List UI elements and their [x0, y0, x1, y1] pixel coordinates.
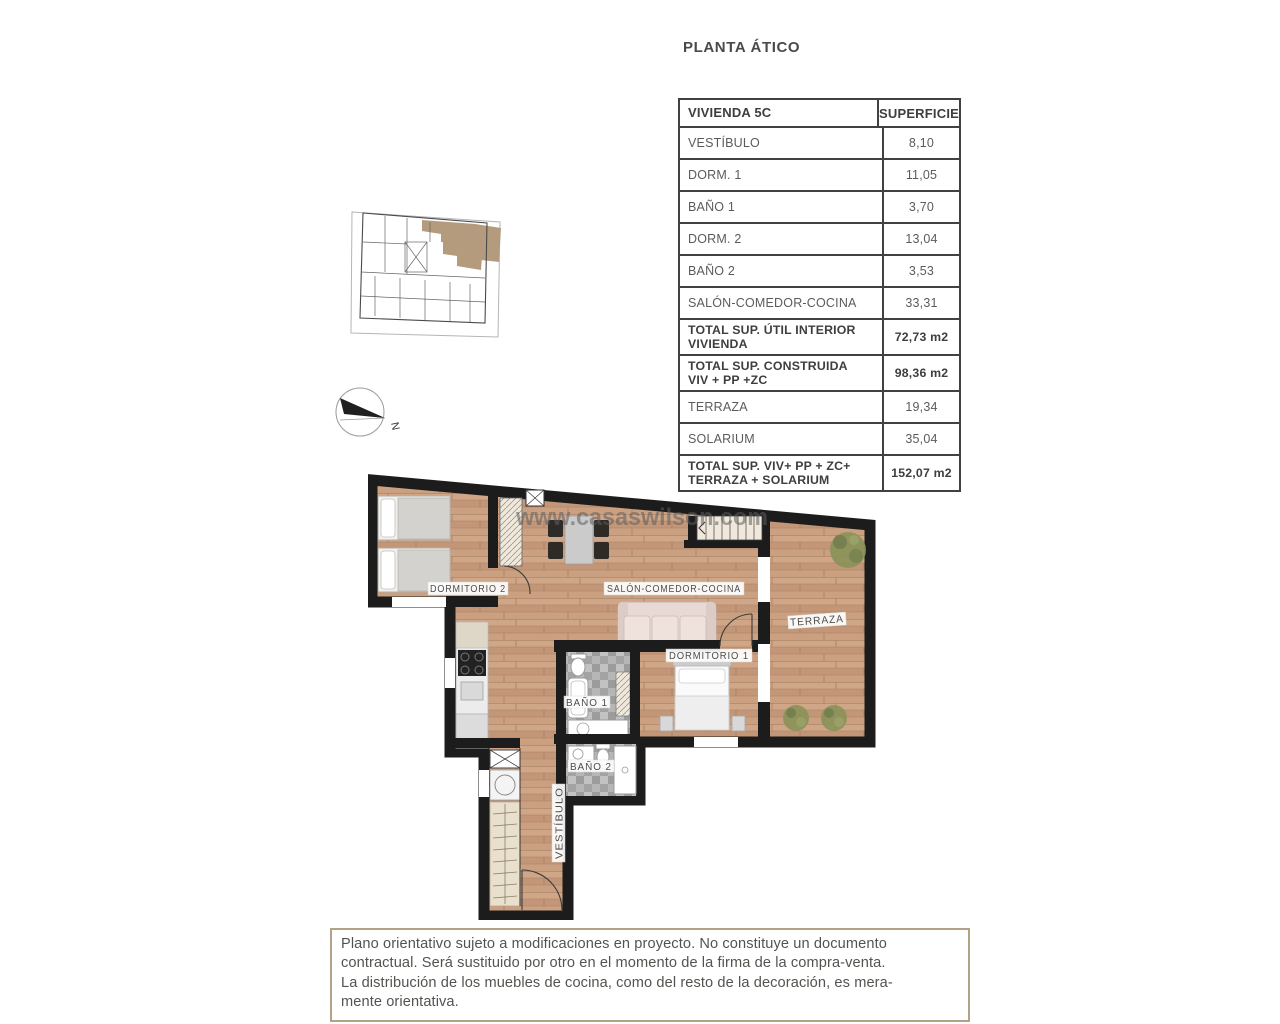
keyplan-thumbnail	[345, 200, 510, 350]
row-label: SOLARIUM	[680, 424, 884, 454]
label-bano1: BAÑO 1	[566, 696, 608, 709]
row-value: 11,05	[884, 160, 959, 190]
row-value: 72,73 m2	[884, 320, 959, 354]
toilet	[571, 658, 585, 676]
table-header-row: VIVIENDA 5C SUPERFICIE	[680, 100, 959, 126]
row-value: 98,36 m2	[884, 356, 959, 390]
row-label: BAÑO 2	[680, 256, 884, 286]
nightstand	[732, 716, 745, 731]
toilet-tank	[596, 744, 610, 749]
disclaimer-line: La distribución de los muebles de cocina…	[341, 974, 959, 993]
row-label: DORM. 2	[680, 224, 884, 254]
row-label: TOTAL SUP. CONSTRUIDA VIV + PP +ZC	[680, 356, 884, 390]
bano1-column	[616, 672, 630, 716]
disclaimer-box: Plano orientativo sujeto a modificacione…	[330, 928, 970, 1022]
disclaimer-line: Plano orientativo sujeto a modificacione…	[341, 935, 959, 954]
label-dormitorio1: DORMITORIO 1	[669, 650, 749, 662]
row-label: DORM. 1	[680, 160, 884, 190]
shower	[614, 746, 636, 794]
table-row: DORM. 1 11,05	[680, 158, 959, 190]
row-value: 8,10	[884, 128, 959, 158]
table-row: TERRAZA 19,34	[680, 390, 959, 422]
label-salon: SALÓN-COMEDOR-COCINA	[607, 582, 741, 595]
row-value: 19,34	[884, 392, 959, 422]
compass-line	[340, 418, 385, 420]
row-label: VESTÍBULO	[680, 128, 884, 158]
row-value: 3,70	[884, 192, 959, 222]
row-label: TOTAL SUP. ÚTIL INTERIOR VIVIENDA	[680, 320, 884, 354]
table-row: SALÓN-COMEDOR-COCINA 33,31	[680, 286, 959, 318]
washbasin	[568, 746, 594, 762]
page: { "page": { "title": "PLANTA ÁTICO" }, "…	[0, 0, 1280, 1024]
compass-needle	[340, 398, 385, 418]
nightstand	[660, 716, 673, 731]
floorplan-svg: DORMITORIO 2 SALÓN-COMEDOR-COCINA DORMIT…	[368, 472, 878, 920]
kitchen-sink	[461, 682, 483, 700]
compass: N	[328, 378, 413, 453]
table-row: BAÑO 2 3,53	[680, 254, 959, 286]
table-row: SOLARIUM 35,04	[680, 422, 959, 454]
surface-table: VIVIENDA 5C SUPERFICIE VESTÍBULO 8,10 DO…	[678, 98, 961, 492]
row-value: 13,04	[884, 224, 959, 254]
table-header-name: VIVIENDA 5C	[680, 100, 879, 126]
table-row: DORM. 2 13,04	[680, 222, 959, 254]
compass-north-label: N	[388, 421, 401, 431]
disclaimer-line: contractual. Será sustituido por otro en…	[341, 954, 959, 973]
table-row: BAÑO 1 3,70	[680, 190, 959, 222]
row-label: BAÑO 1	[680, 192, 884, 222]
disclaimer-line: mente orientativa.	[341, 993, 959, 1012]
kitchen-counter	[456, 622, 488, 748]
page-title: PLANTA ÁTICO	[683, 39, 800, 56]
row-label: TERRAZA	[680, 392, 884, 422]
label-vestibulo: VESTÍBULO	[553, 787, 566, 859]
row-label: SALÓN-COMEDOR-COCINA	[680, 288, 884, 318]
label-bano2: BAÑO 2	[570, 760, 612, 773]
row-value: 35,04	[884, 424, 959, 454]
table-header-value: SUPERFICIE	[879, 100, 959, 126]
row-value: 33,31	[884, 288, 959, 318]
label-dormitorio2: DORMITORIO 2	[430, 583, 506, 595]
table-row: VESTÍBULO 8,10	[680, 126, 959, 158]
table-row-total: TOTAL SUP. ÚTIL INTERIOR VIVIENDA 72,73 …	[680, 318, 959, 354]
row-value: 152,07 m2	[884, 456, 959, 490]
row-value: 3,53	[884, 256, 959, 286]
table-row-total: TOTAL SUP. CONSTRUIDA VIV + PP +ZC 98,36…	[680, 354, 959, 390]
watermark: www.casaswilson.com	[515, 504, 768, 531]
vestibule-utilities	[490, 748, 520, 906]
